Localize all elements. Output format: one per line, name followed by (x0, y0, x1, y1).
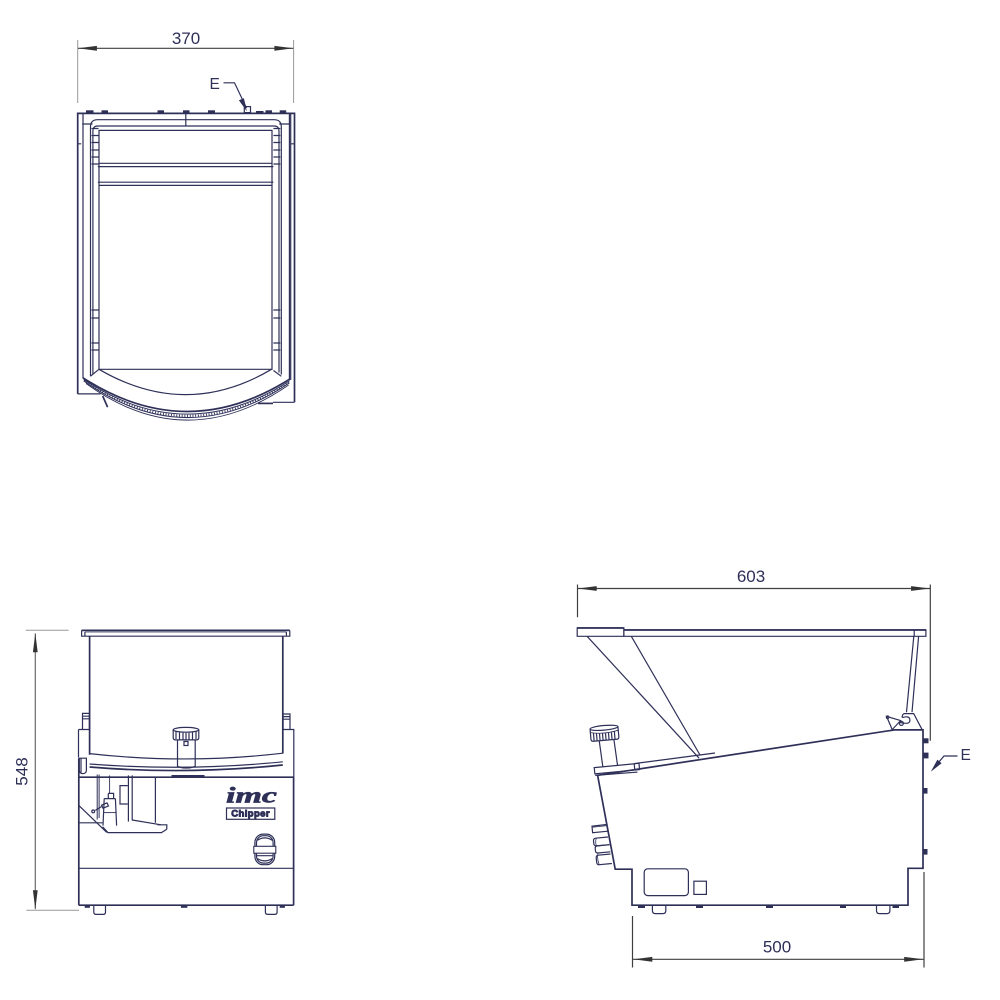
svg-text:603: 603 (737, 567, 765, 586)
svg-text:Chipper: Chipper (231, 809, 270, 820)
svg-text:E: E (961, 747, 971, 764)
svg-text:500: 500 (763, 938, 791, 957)
svg-text:imc: imc (226, 783, 277, 808)
svg-text:370: 370 (172, 29, 200, 48)
svg-text:548: 548 (13, 757, 32, 785)
svg-text:E: E (210, 76, 220, 93)
